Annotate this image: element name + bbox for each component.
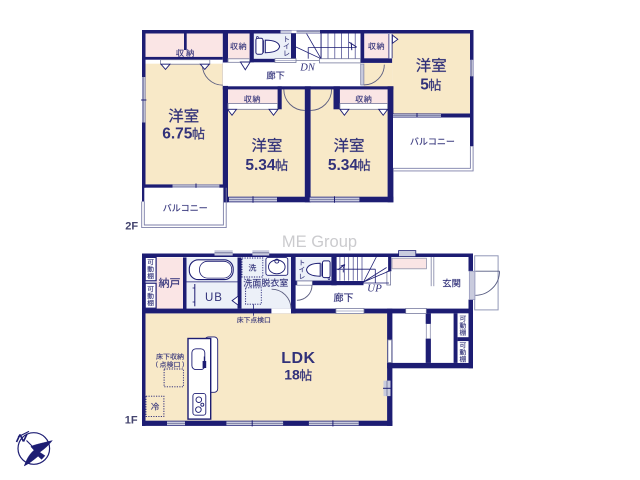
svg-text:2F: 2F [125, 220, 138, 232]
svg-text:DN: DN [299, 63, 316, 74]
svg-text:5.34: 5.34 [328, 157, 359, 174]
svg-text:UB: UB [205, 292, 223, 304]
svg-text:ME Group: ME Group [282, 233, 357, 251]
svg-text:18: 18 [284, 366, 300, 382]
svg-text:1F: 1F [125, 415, 138, 427]
svg-text:6.75: 6.75 [162, 125, 193, 142]
svg-text:LDK: LDK [281, 350, 315, 367]
svg-text:5: 5 [420, 77, 429, 94]
svg-text:5.34: 5.34 [245, 157, 276, 174]
svg-text:UP: UP [367, 283, 382, 295]
